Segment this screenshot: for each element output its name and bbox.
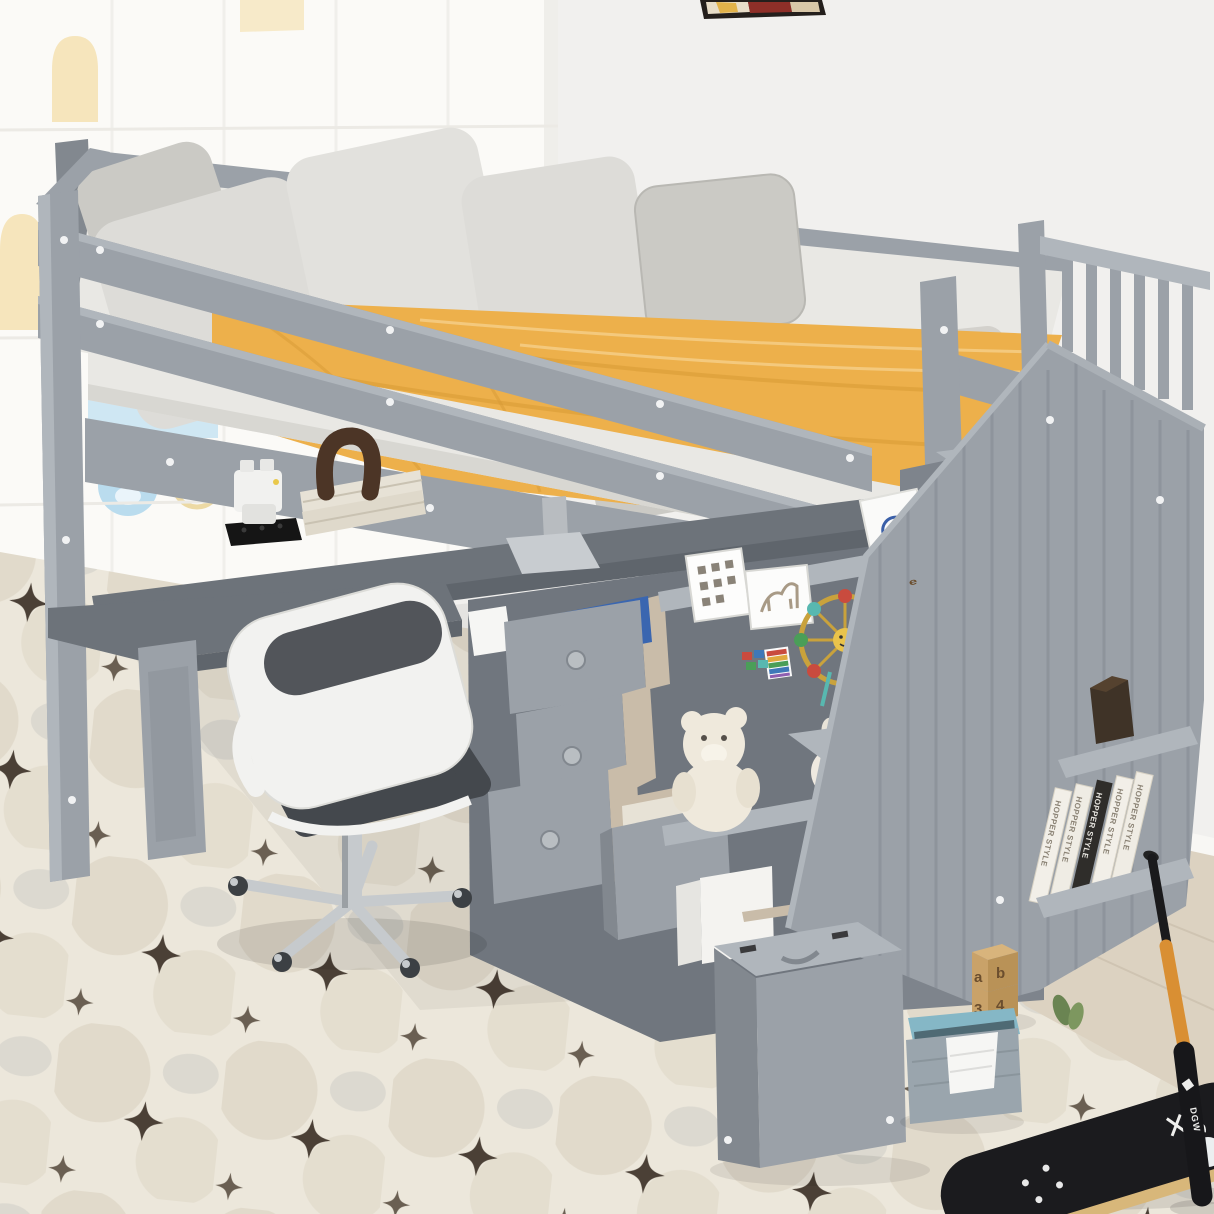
fabric-storage-bin	[900, 1008, 1024, 1134]
scene-canvas: LIQUID CHARCOAL	[0, 0, 1214, 1214]
white-cloth	[946, 1032, 998, 1094]
pillow-flanged	[633, 172, 808, 338]
rainbow-mini-frame	[764, 646, 792, 679]
block-letter-a: a	[974, 969, 983, 986]
loft-bed-product-photo: LIQUID CHARCOAL	[0, 0, 1214, 1214]
wardrobe-arch-panel	[52, 36, 98, 122]
block-letter-b: b	[996, 965, 1005, 982]
wardrobe-arch-panel	[0, 214, 44, 330]
picture-frame-horse	[745, 565, 813, 629]
picture-frame-grid	[686, 548, 751, 621]
